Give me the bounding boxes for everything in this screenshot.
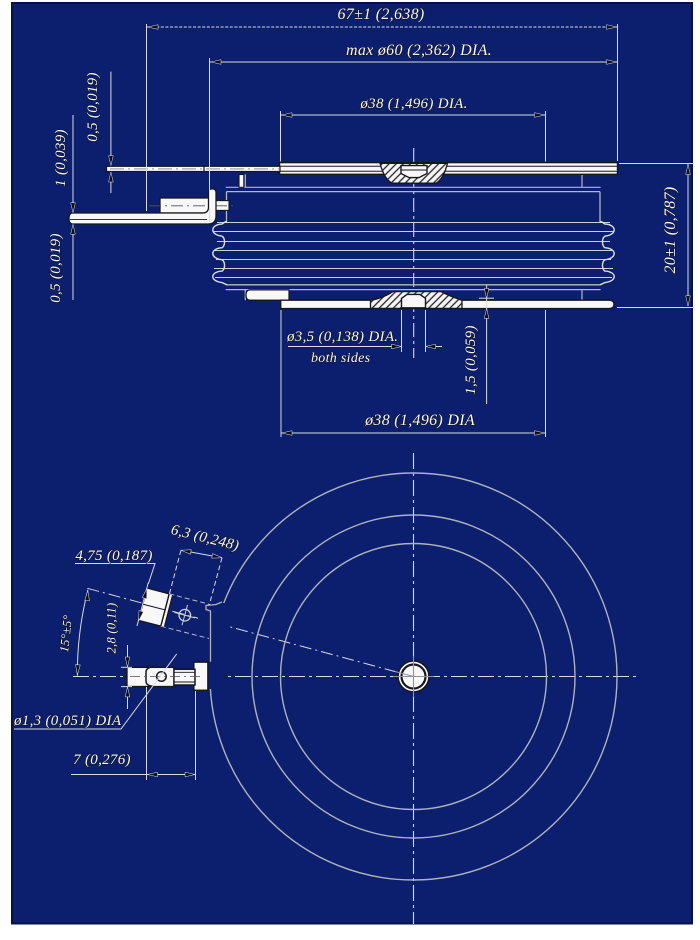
svg-text:1 (0,039): 1 (0,039) (53, 129, 69, 187)
svg-text:4,75 (0,187): 4,75 (0,187) (75, 548, 152, 564)
svg-text:1,5 (0,059): 1,5 (0,059) (463, 325, 479, 395)
svg-text:20±1 (0,787): 20±1 (0,787) (662, 186, 679, 273)
svg-text:ø38 (1,496) DIA: ø38 (1,496) DIA (364, 412, 475, 429)
svg-text:7 (0,276): 7 (0,276) (73, 752, 131, 768)
svg-text:ø3,5 (0,138) DIA.: ø3,5 (0,138) DIA. (286, 329, 398, 345)
svg-text:ø38 (1,496) DIA.: ø38 (1,496) DIA. (359, 96, 467, 112)
svg-text:0,5 (0,019): 0,5 (0,019) (85, 72, 101, 142)
svg-text:2,8 (0,11): 2,8 (0,11) (105, 602, 119, 653)
svg-text:ø1,3 (0,051) DIA: ø1,3 (0,051) DIA (13, 713, 122, 729)
svg-text:max ø60 (2,362) DIA.: max ø60 (2,362) DIA. (346, 42, 492, 59)
svg-text:0,5 (0,019): 0,5 (0,019) (48, 233, 64, 303)
svg-text:67±1 (2,638): 67±1 (2,638) (337, 6, 424, 23)
svg-text:both sides: both sides (311, 351, 371, 366)
